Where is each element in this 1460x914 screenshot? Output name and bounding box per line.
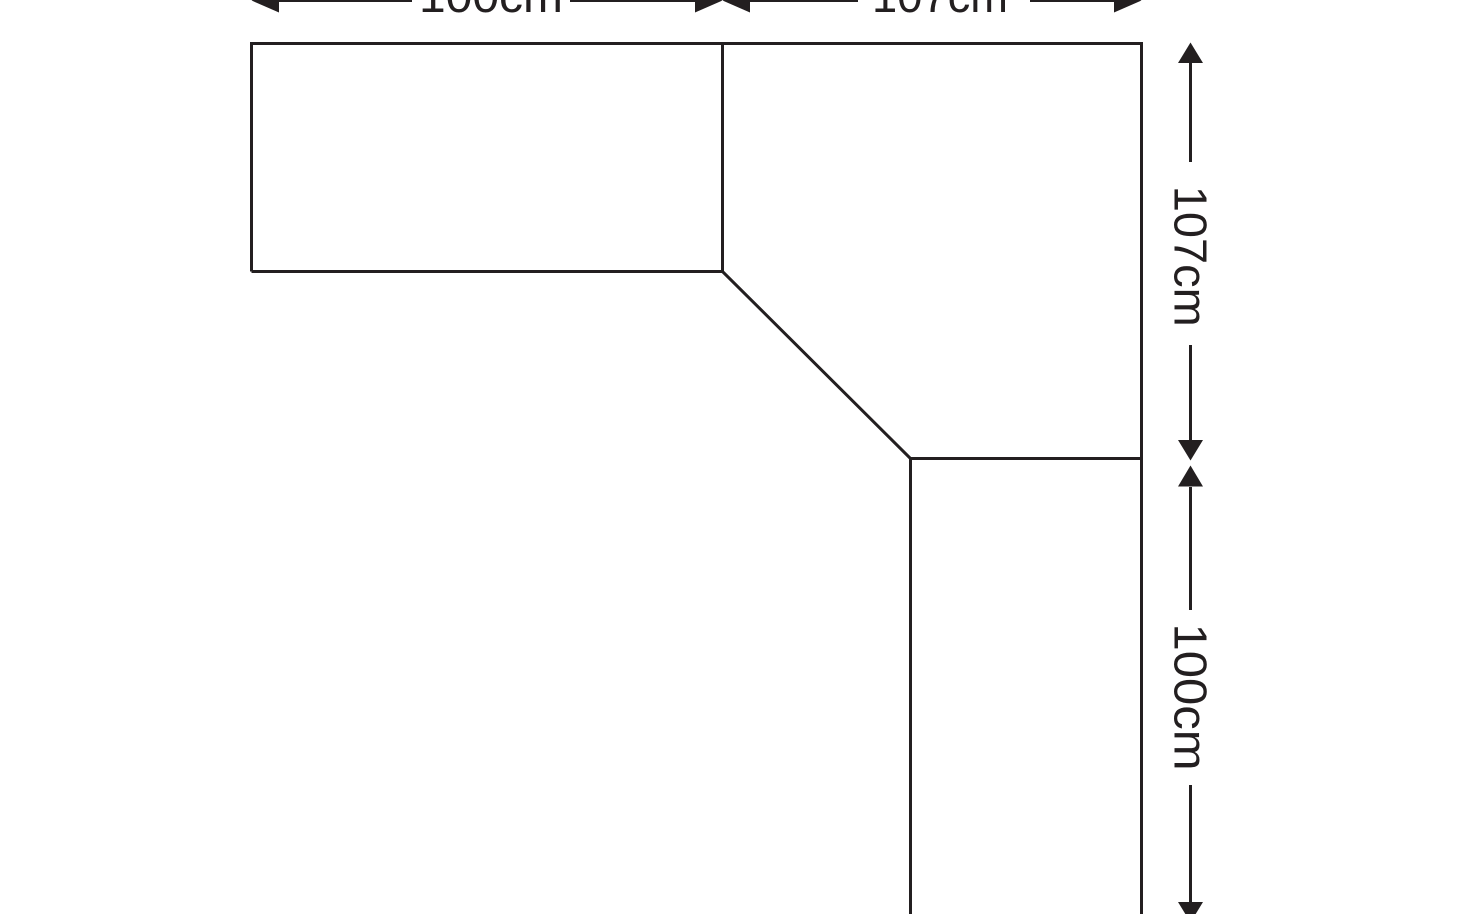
- svg-text:100cm: 100cm: [419, 0, 563, 22]
- svg-text:107cm: 107cm: [872, 0, 1008, 22]
- svg-text:107cm: 107cm: [1165, 186, 1217, 327]
- svg-text:100cm: 100cm: [1165, 624, 1217, 771]
